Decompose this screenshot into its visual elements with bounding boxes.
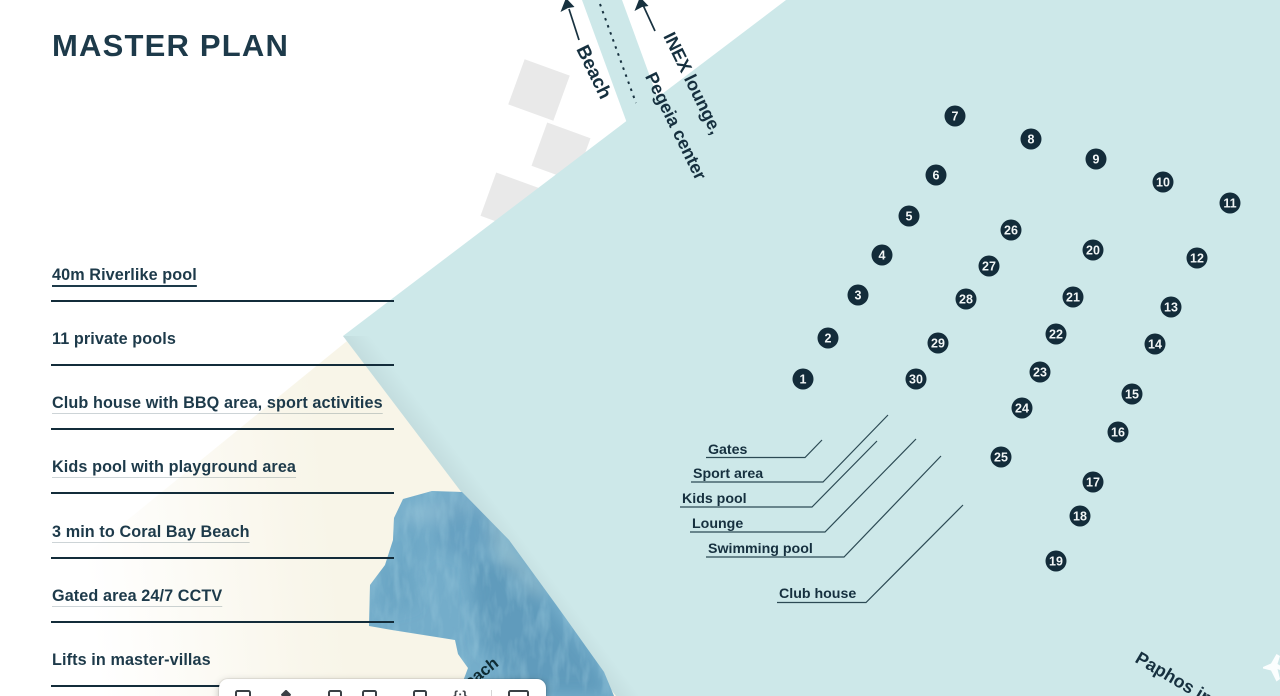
svg-text:22: 22: [1049, 328, 1063, 342]
svg-text:14: 14: [1148, 338, 1162, 352]
svg-text:11: 11: [1223, 197, 1236, 211]
svg-text:10: 10: [1156, 176, 1170, 190]
svg-text:9: 9: [1093, 153, 1100, 167]
svg-text:Kids pool: Kids pool: [682, 491, 747, 507]
svg-text:4: 4: [879, 249, 886, 263]
svg-text:12: 12: [1190, 252, 1204, 266]
svg-text:20: 20: [1086, 244, 1100, 258]
svg-text:8: 8: [1028, 133, 1035, 147]
svg-text:26: 26: [1004, 224, 1018, 238]
svg-text:Swimming pool: Swimming pool: [708, 541, 813, 557]
svg-text:5: 5: [906, 210, 913, 224]
svg-text:Gates: Gates: [708, 442, 748, 458]
svg-text:1: 1: [800, 373, 807, 387]
svg-text:24: 24: [1015, 402, 1029, 416]
svg-text:7: 7: [952, 110, 959, 124]
svg-text:30: 30: [909, 373, 923, 387]
svg-text:18: 18: [1073, 510, 1087, 524]
svg-text:25: 25: [994, 451, 1008, 465]
svg-text:2: 2: [825, 332, 832, 346]
svg-text:29: 29: [931, 337, 945, 351]
svg-text:21: 21: [1066, 291, 1080, 305]
svg-text:6: 6: [933, 169, 940, 183]
svg-text:16: 16: [1111, 426, 1125, 440]
svg-text:Sport area: Sport area: [693, 466, 763, 482]
svg-text:Lounge: Lounge: [692, 516, 743, 532]
svg-text:Club house: Club house: [779, 586, 856, 602]
svg-text:23: 23: [1033, 366, 1047, 380]
svg-text:13: 13: [1164, 301, 1178, 315]
svg-text:3: 3: [855, 289, 862, 303]
svg-text:19: 19: [1049, 555, 1063, 569]
svg-text:28: 28: [959, 293, 973, 307]
svg-text:15: 15: [1125, 388, 1139, 402]
svg-text:27: 27: [982, 260, 996, 274]
svg-text:17: 17: [1086, 476, 1100, 490]
